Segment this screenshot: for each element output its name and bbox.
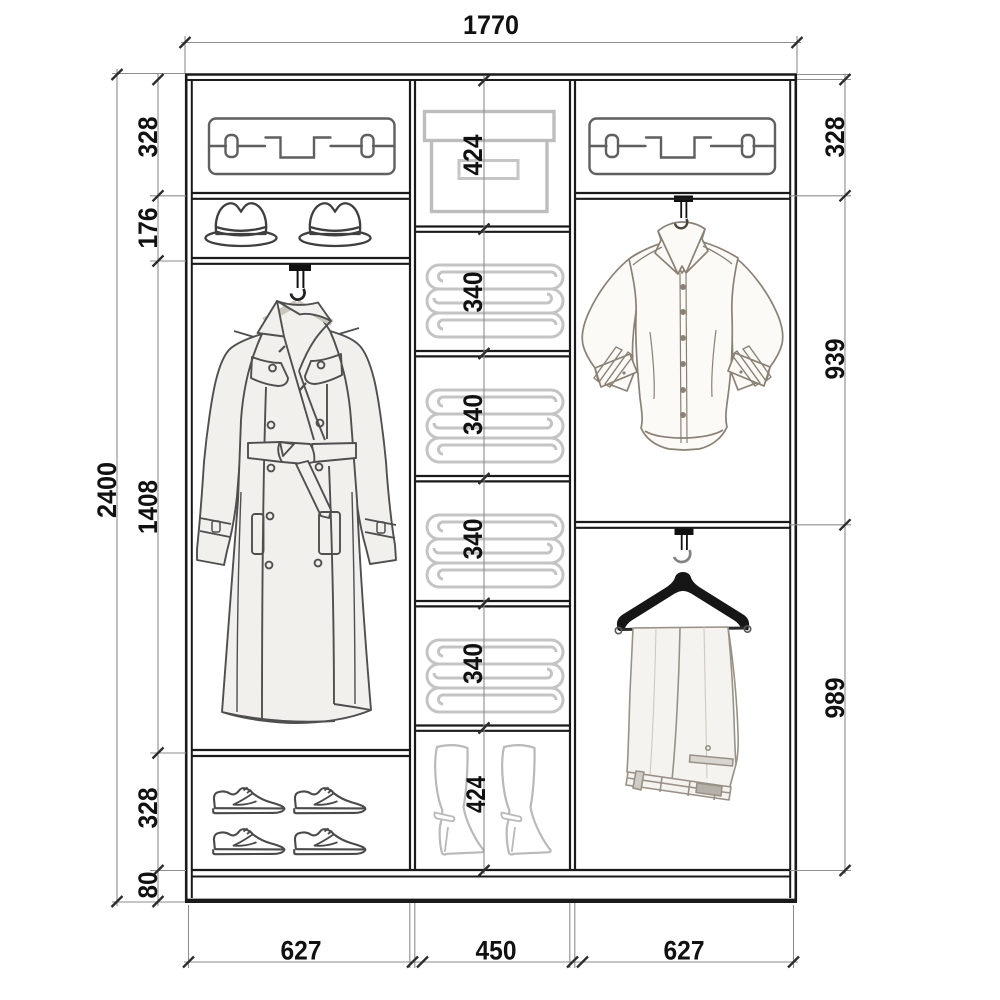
svg-text:424: 424	[458, 135, 488, 176]
svg-text:80: 80	[133, 872, 163, 899]
svg-text:1770: 1770	[463, 10, 519, 40]
svg-text:340: 340	[458, 394, 488, 435]
svg-text:340: 340	[458, 643, 488, 684]
svg-text:328: 328	[133, 788, 163, 829]
svg-text:424: 424	[461, 776, 491, 813]
svg-text:627: 627	[664, 936, 705, 966]
svg-text:176: 176	[133, 208, 163, 249]
svg-text:328: 328	[133, 117, 163, 158]
svg-text:1408: 1408	[133, 480, 163, 534]
svg-text:450: 450	[476, 936, 517, 966]
svg-text:340: 340	[458, 272, 488, 313]
svg-text:340: 340	[458, 519, 488, 560]
svg-text:939: 939	[820, 339, 850, 380]
svg-text:328: 328	[820, 117, 850, 158]
svg-text:2400: 2400	[92, 462, 122, 518]
svg-text:627: 627	[281, 936, 322, 966]
svg-text:989: 989	[820, 678, 850, 719]
